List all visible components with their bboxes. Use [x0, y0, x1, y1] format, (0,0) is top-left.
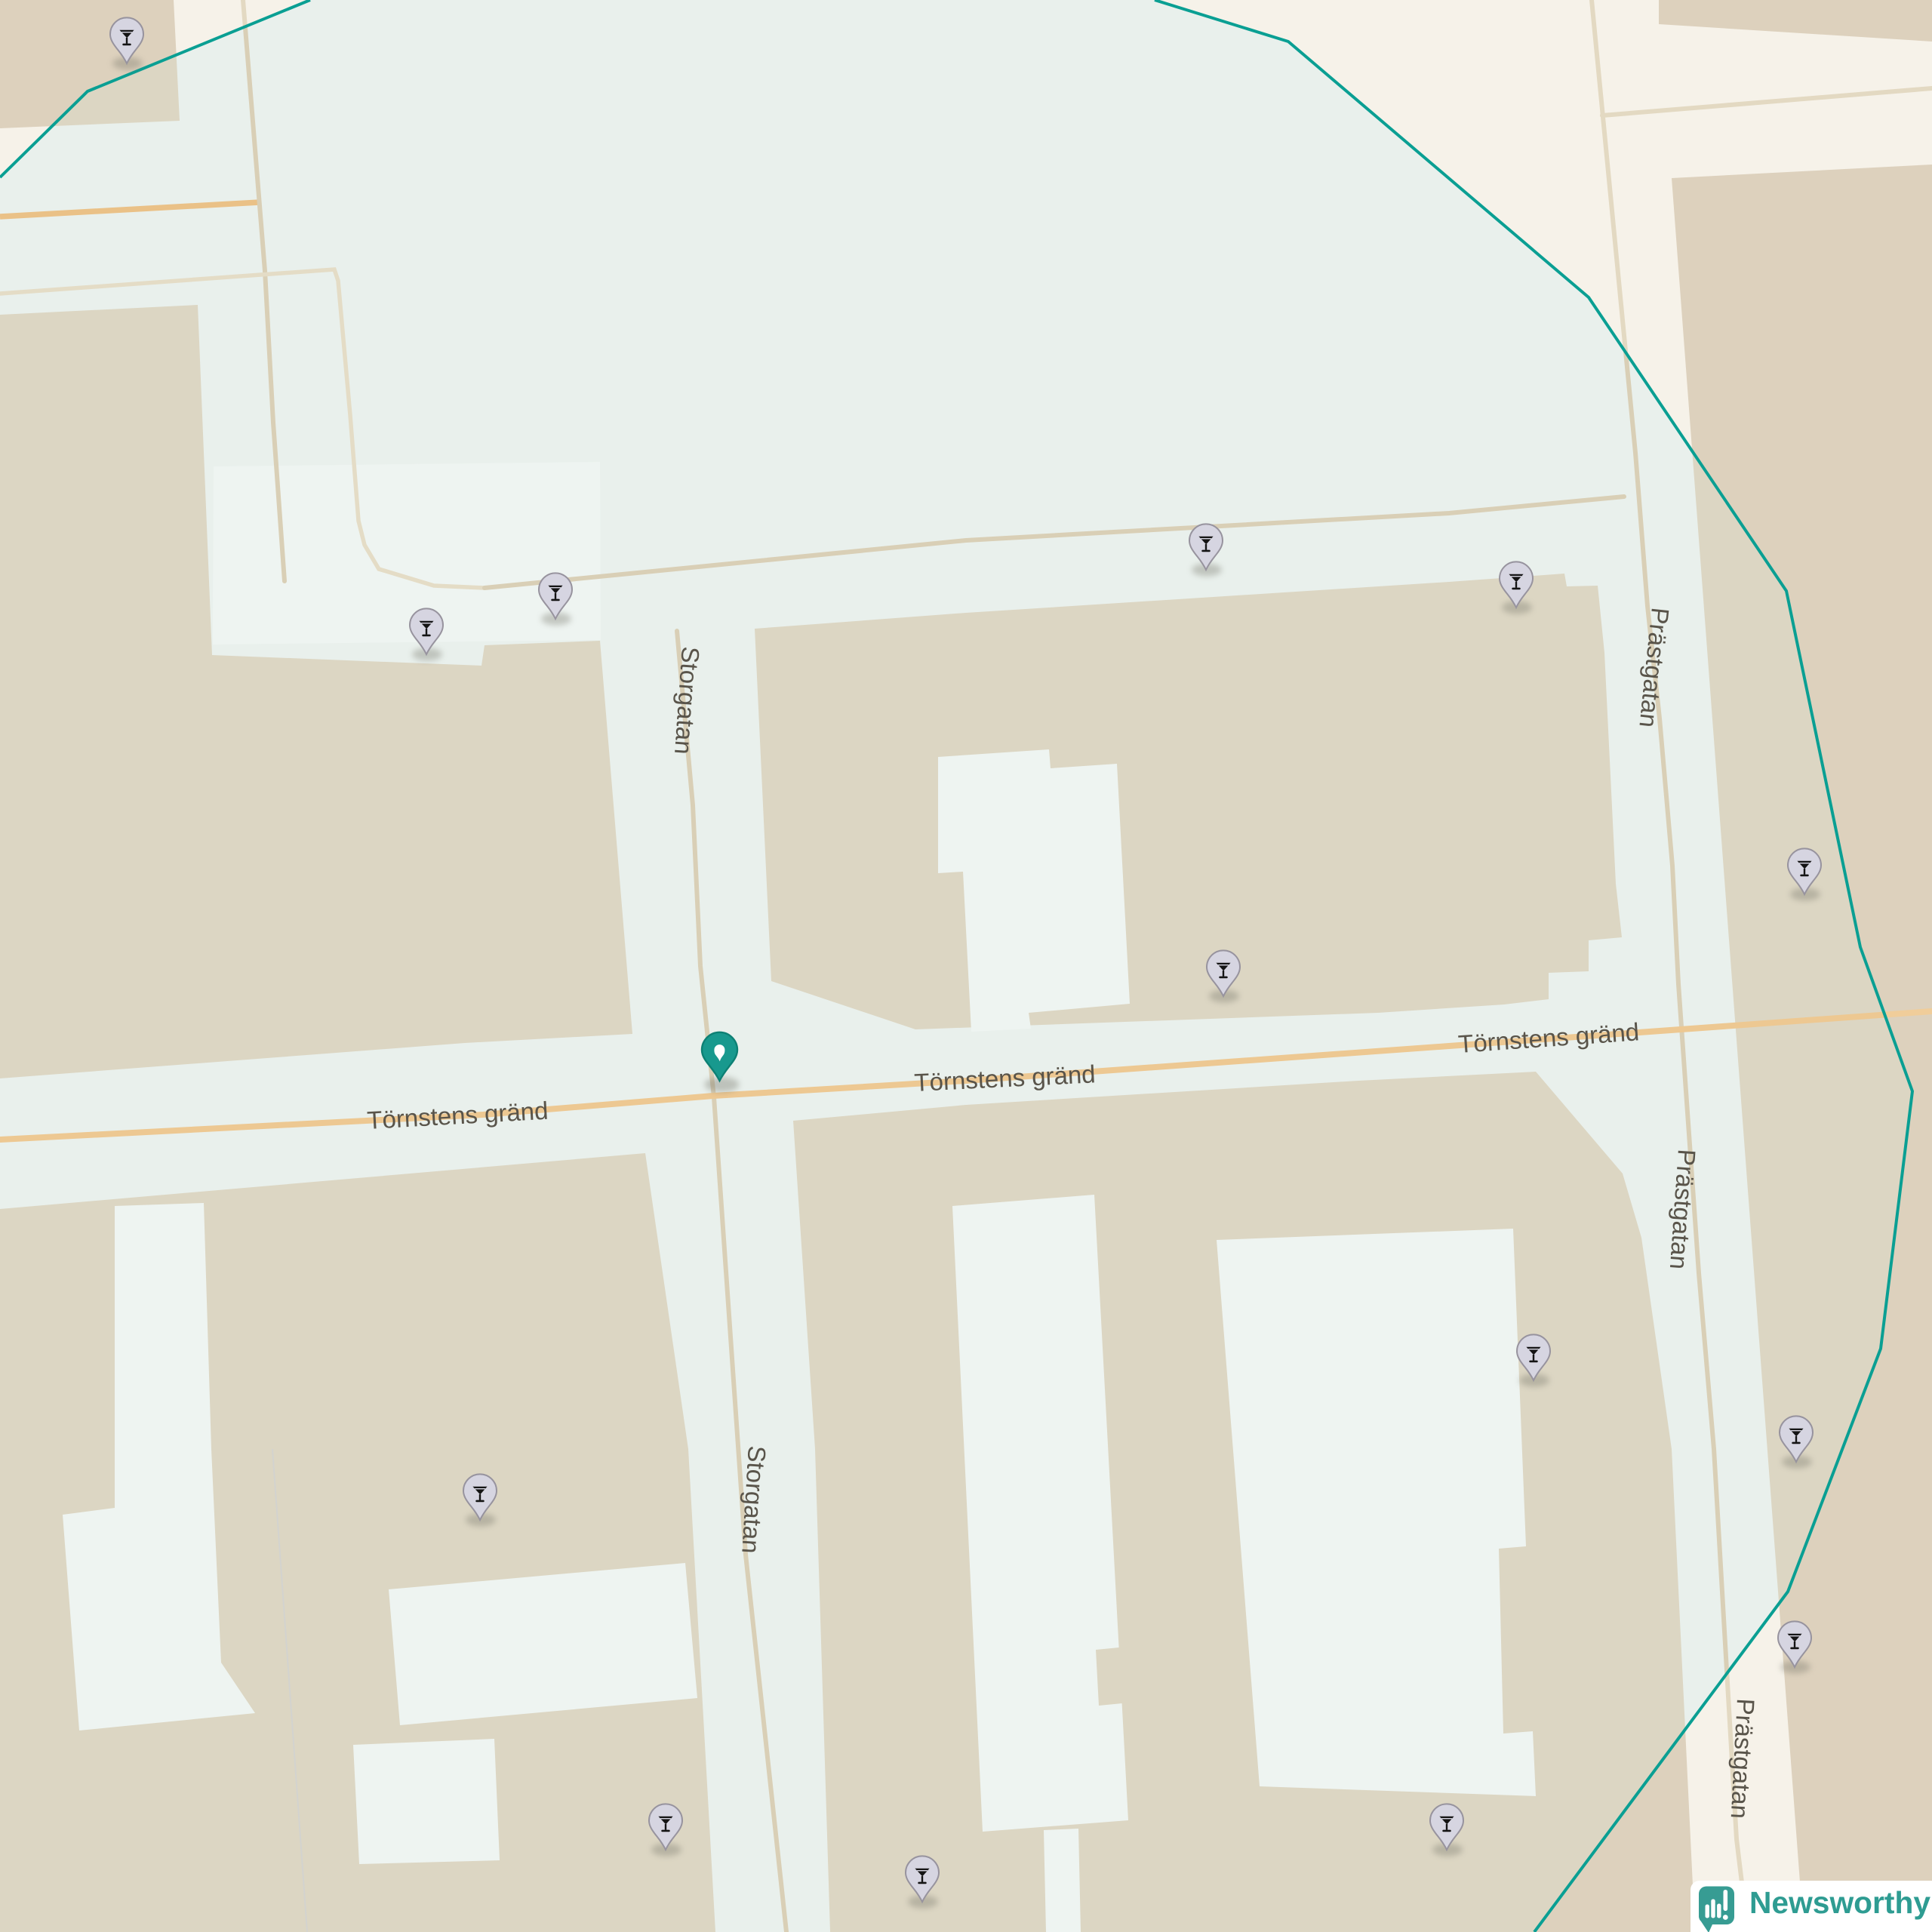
svg-text:Newsworthy: Newsworthy	[1749, 1885, 1930, 1920]
